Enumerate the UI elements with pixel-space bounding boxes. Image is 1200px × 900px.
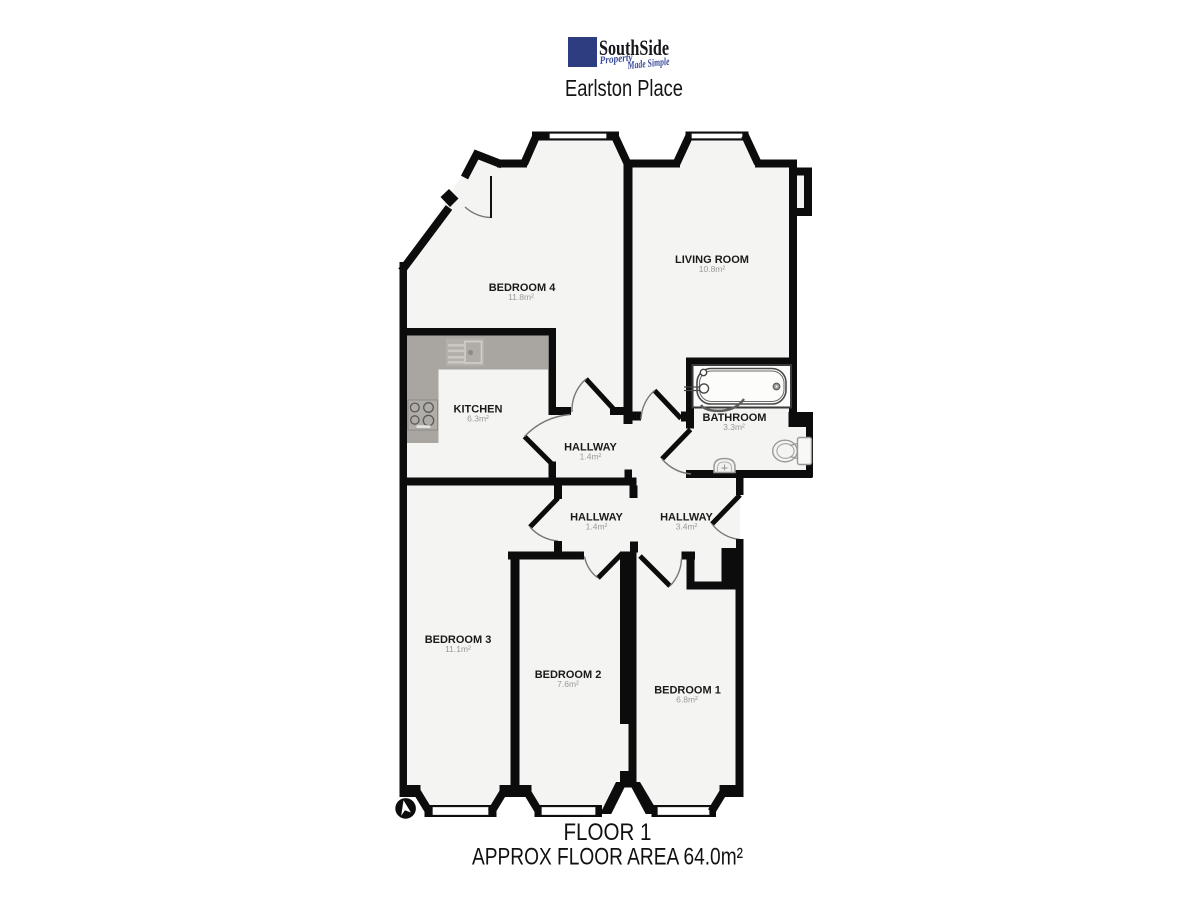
svg-text:3.3m²: 3.3m² xyxy=(723,422,745,432)
svg-text:11.8m²: 11.8m² xyxy=(508,292,534,302)
svg-text:1.4m²: 1.4m² xyxy=(586,522,608,532)
svg-text:10.8m²: 10.8m² xyxy=(699,264,726,274)
svg-text:1.4m²: 1.4m² xyxy=(580,452,602,462)
svg-text:7.6m²: 7.6m² xyxy=(557,679,579,689)
svg-text:6.3m²: 6.3m² xyxy=(467,414,489,424)
svg-text:6.8m²: 6.8m² xyxy=(676,695,698,705)
svg-text:11.1m²: 11.1m² xyxy=(445,644,471,654)
svg-text:Earlston Place: Earlston Place xyxy=(565,75,683,101)
svg-text:3.4m²: 3.4m² xyxy=(676,522,698,532)
svg-text:FLOOR 1: FLOOR 1 xyxy=(564,819,652,846)
svg-text:APPROX FLOOR AREA 64.0m²: APPROX FLOOR AREA 64.0m² xyxy=(472,844,743,871)
